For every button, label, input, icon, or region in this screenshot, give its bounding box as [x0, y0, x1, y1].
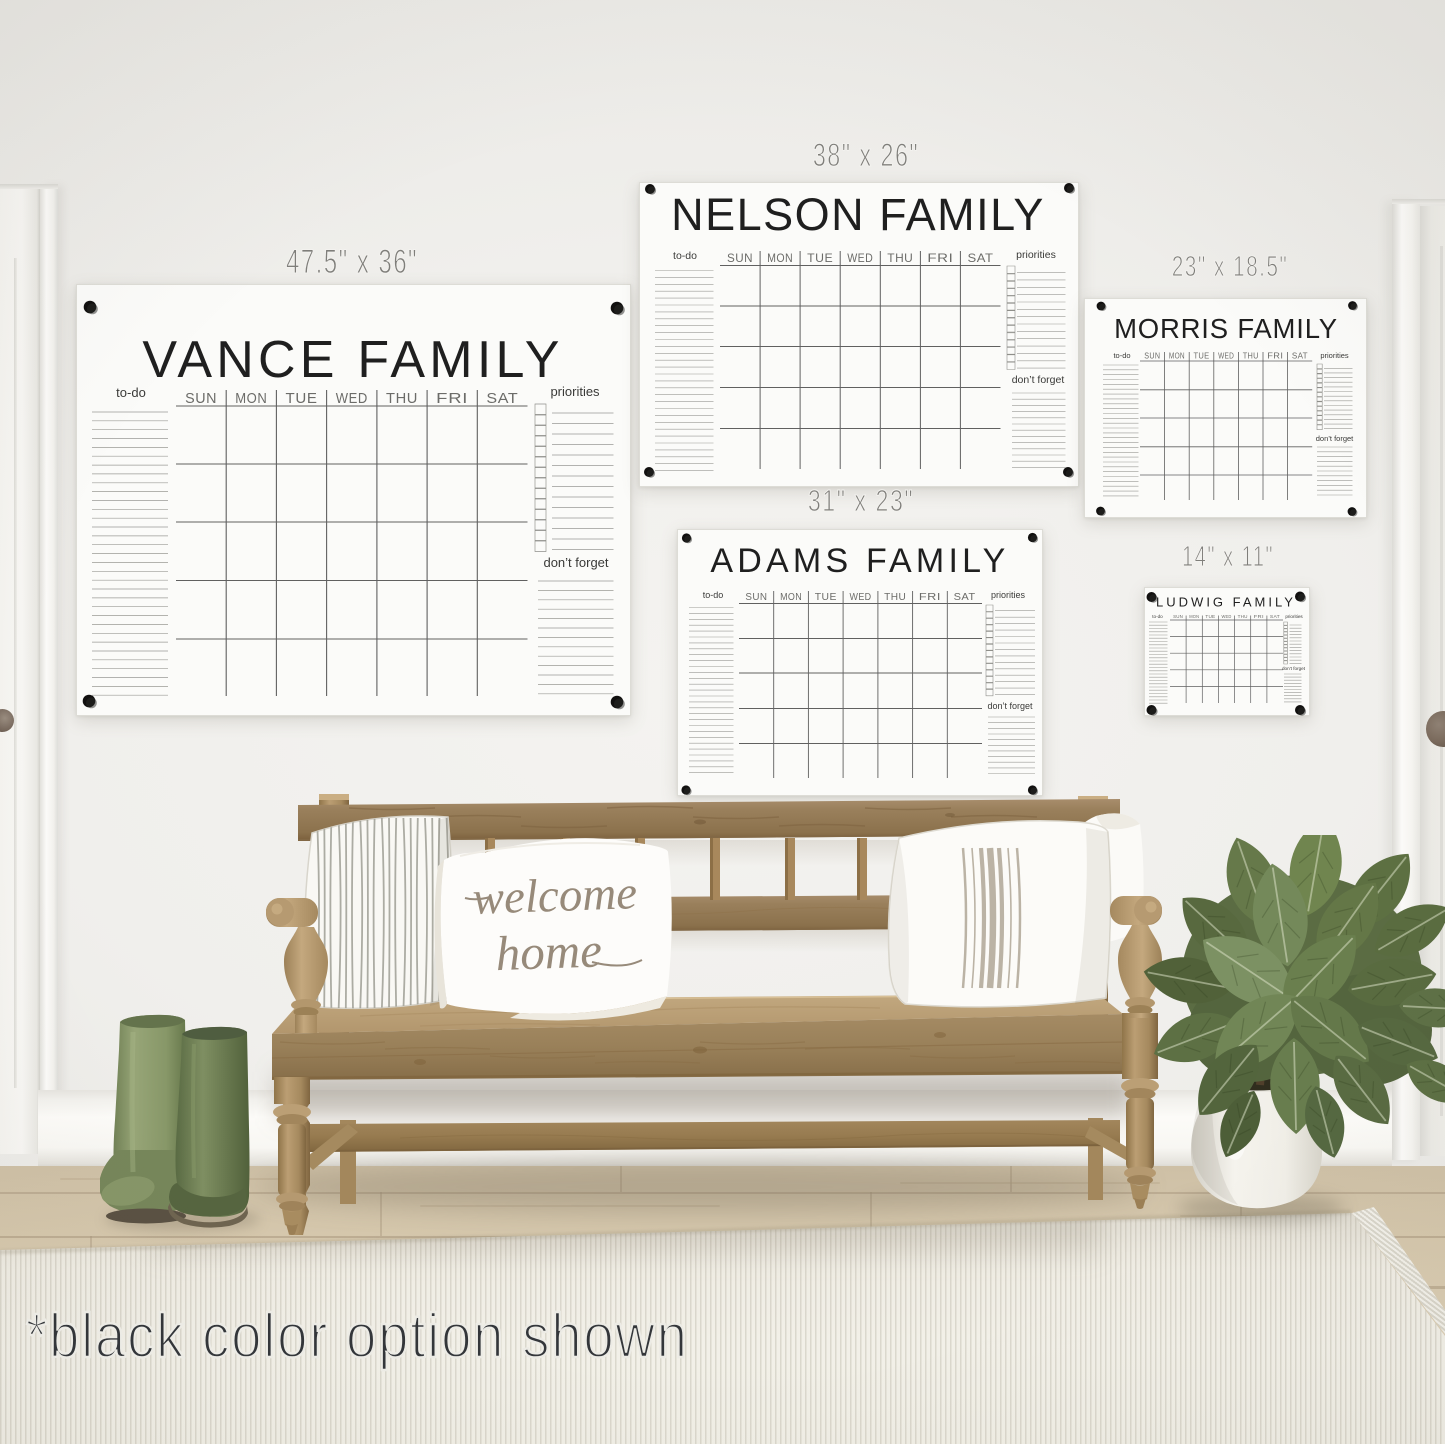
svg-text:to-do: to-do	[673, 250, 697, 262]
svg-text:THU: THU	[1243, 352, 1259, 361]
svg-text:priorities: priorities	[550, 384, 600, 399]
svg-text:THU: THU	[887, 251, 913, 265]
svg-text:MORRIS FAMILY: MORRIS FAMILY	[1114, 313, 1338, 344]
svg-text:LUDWIG FAMILY: LUDWIG FAMILY	[1156, 595, 1296, 610]
svg-text:priorities: priorities	[991, 590, 1026, 600]
svg-text:WED: WED	[850, 592, 872, 603]
svg-text:FRI: FRI	[436, 391, 468, 407]
svg-text:SUN: SUN	[185, 391, 217, 407]
svg-text:VANCE FAMILY: VANCE FAMILY	[142, 331, 563, 389]
svg-text:to-do: to-do	[703, 590, 724, 600]
svg-text:MON: MON	[1169, 352, 1185, 361]
svg-text:MON: MON	[235, 391, 267, 407]
svg-text:welcome: welcome	[472, 867, 638, 925]
svg-text:TUE: TUE	[1194, 352, 1210, 361]
svg-text:TUE: TUE	[807, 251, 833, 265]
svg-text:SAT: SAT	[1270, 614, 1280, 620]
svg-text:MON: MON	[780, 592, 802, 603]
svg-text:don’t forget: don’t forget	[987, 701, 1033, 711]
svg-text:to-do: to-do	[1113, 351, 1130, 360]
svg-text:THU: THU	[1238, 614, 1248, 620]
svg-text:MON: MON	[767, 251, 793, 265]
svg-text:SAT: SAT	[968, 251, 994, 265]
svg-text:FRI: FRI	[1254, 614, 1264, 620]
svg-text:don’t forget: don’t forget	[1012, 374, 1065, 386]
svg-text:home: home	[495, 922, 603, 981]
svg-text:to-do: to-do	[116, 385, 146, 400]
svg-text:SUN: SUN	[745, 592, 767, 603]
svg-text:TUE: TUE	[815, 592, 837, 603]
svg-text:priorities: priorities	[1320, 351, 1349, 360]
svg-text:THU: THU	[884, 592, 906, 603]
svg-text:TUE: TUE	[286, 391, 318, 407]
svg-text:WED: WED	[1218, 352, 1234, 361]
svg-text:priorities: priorities	[1285, 614, 1303, 619]
svg-text:SUN: SUN	[727, 251, 753, 265]
svg-text:FRI: FRI	[927, 251, 953, 265]
svg-text:don’t forget: don’t forget	[1282, 666, 1306, 671]
svg-text:to-do: to-do	[1152, 614, 1163, 619]
svg-text:SUN: SUN	[1173, 614, 1183, 620]
svg-text:SAT: SAT	[954, 592, 976, 603]
svg-text:SAT: SAT	[486, 391, 518, 407]
svg-text:TUE: TUE	[1205, 614, 1215, 620]
svg-text:WED: WED	[847, 251, 873, 265]
svg-text:SUN: SUN	[1144, 352, 1160, 361]
svg-text:NELSON FAMILY: NELSON FAMILY	[671, 189, 1045, 240]
svg-text:don’t forget: don’t forget	[543, 555, 608, 570]
svg-text:MON: MON	[1189, 614, 1199, 620]
svg-text:priorities: priorities	[1016, 249, 1056, 261]
svg-text:FRI: FRI	[1267, 352, 1283, 361]
svg-text:WED: WED	[336, 391, 368, 407]
svg-text:SAT: SAT	[1292, 352, 1308, 361]
svg-text:WED: WED	[1222, 614, 1232, 620]
svg-text:THU: THU	[386, 391, 418, 407]
svg-text:ADAMS FAMILY: ADAMS FAMILY	[710, 542, 1009, 580]
svg-text:FRI: FRI	[919, 592, 941, 603]
svg-text:don’t forget: don’t forget	[1316, 434, 1354, 443]
